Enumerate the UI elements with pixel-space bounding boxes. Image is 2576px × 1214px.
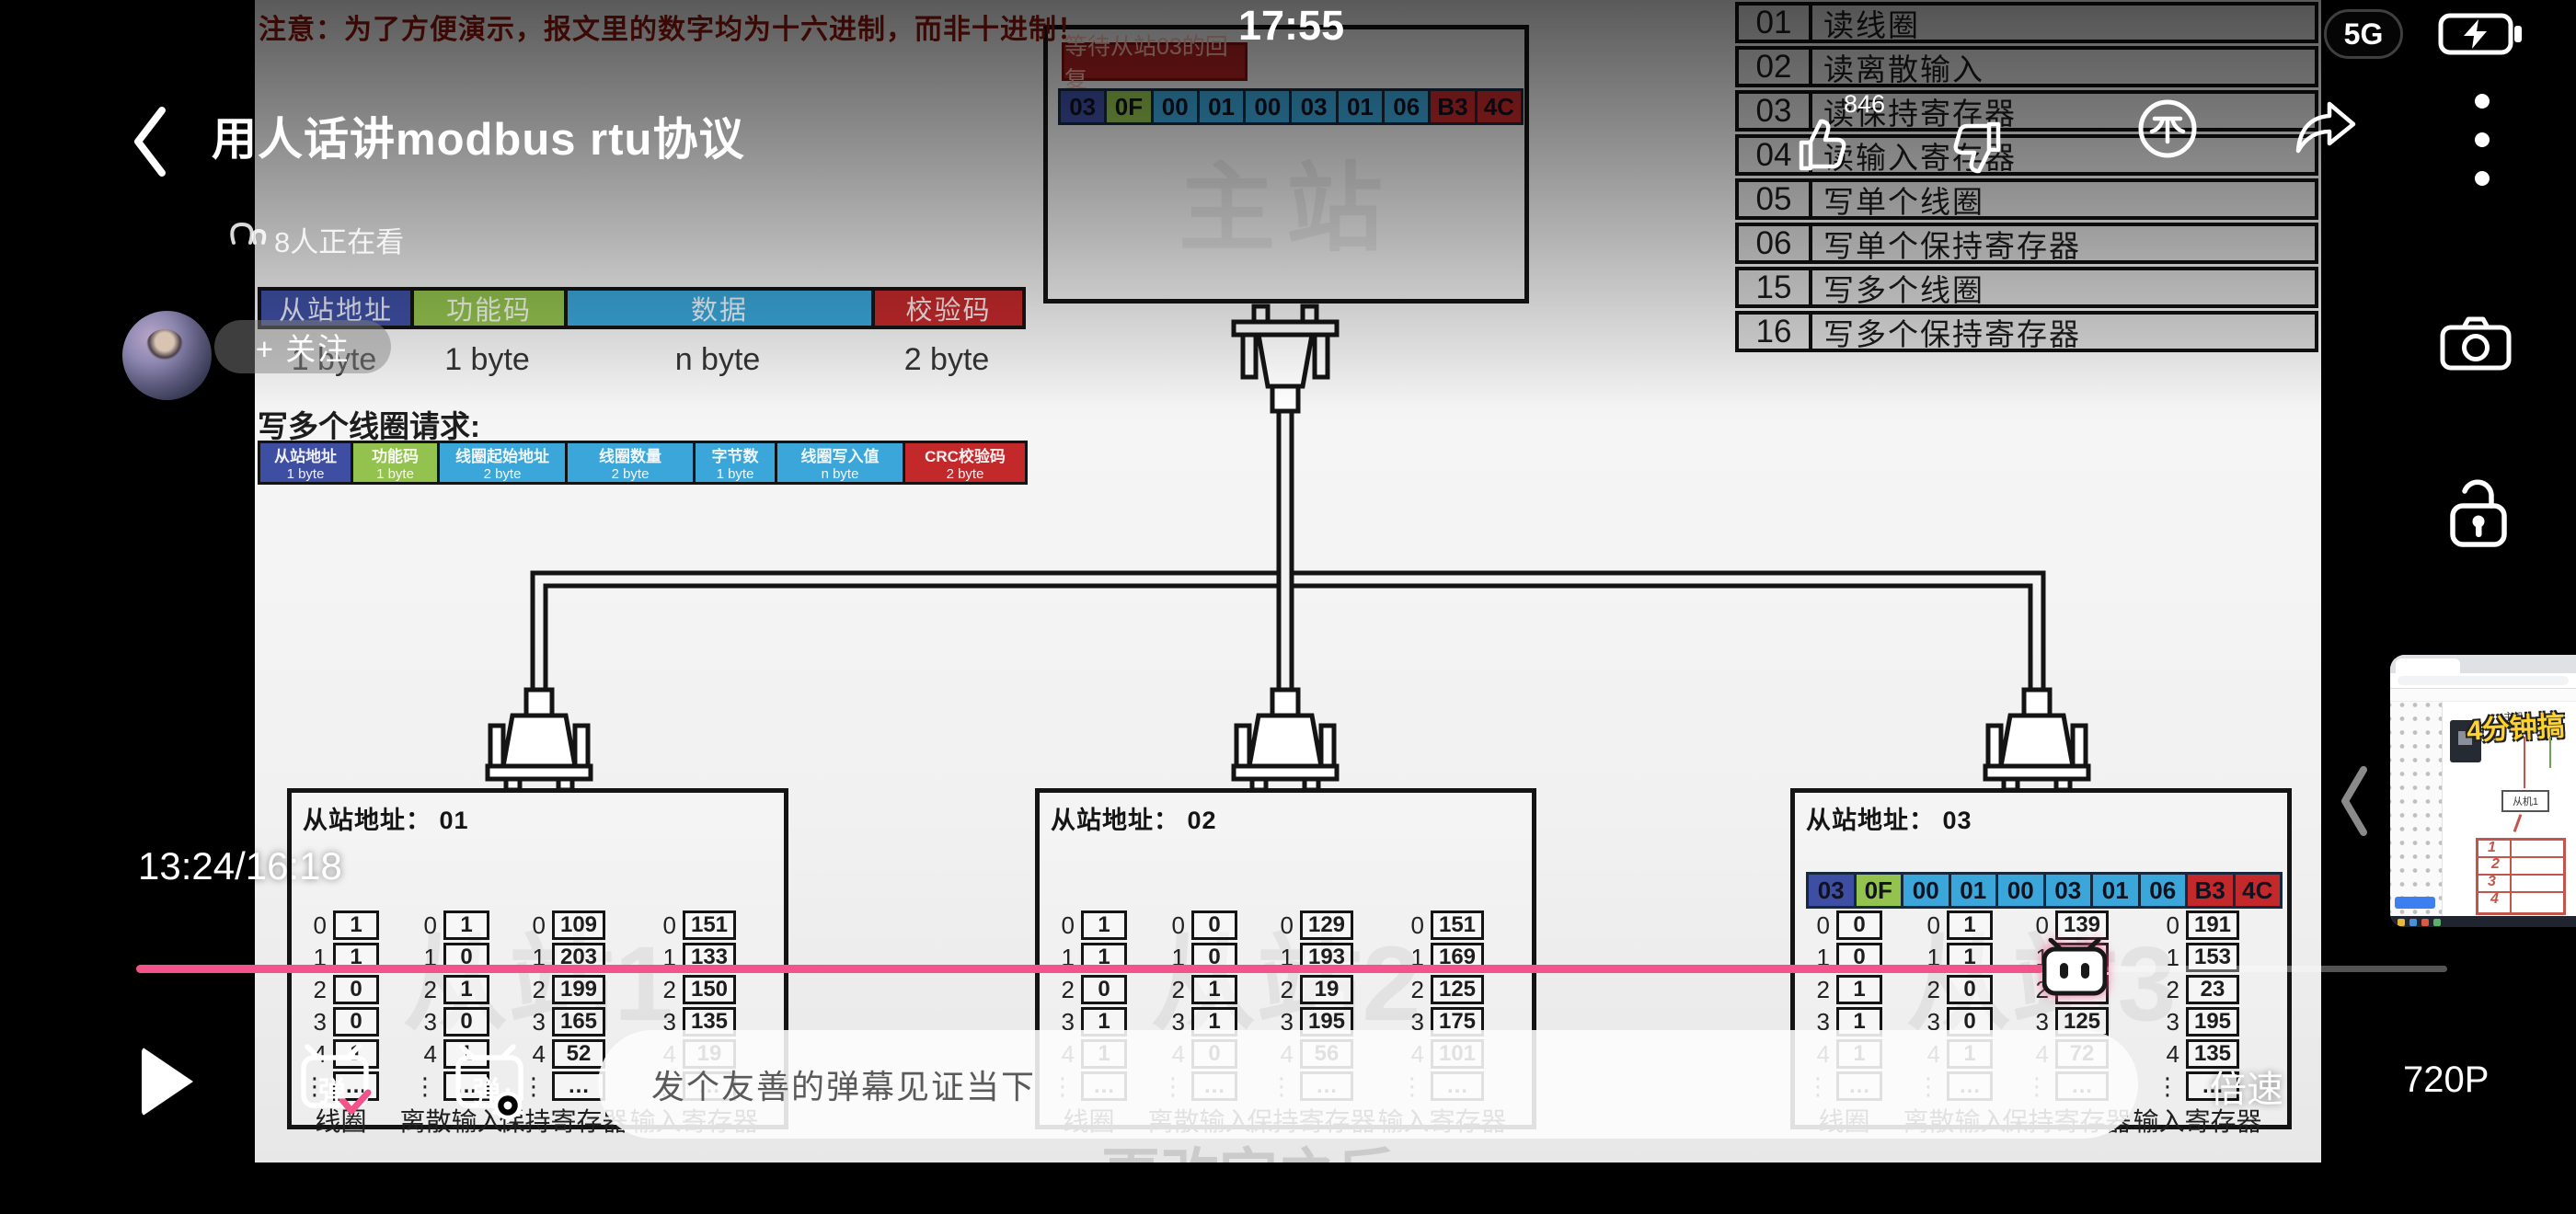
request-field: 线圈起始地址2 byte [437,441,568,485]
function-code: 15 [1735,267,1812,308]
write-coils-request-structure: 从站地址1 byte功能码1 byte线圈起始地址2 byte线圈数量2 byt… [258,441,1025,485]
battery-charging-icon [2438,11,2523,57]
byte-cell: 06 [1382,91,1428,122]
uploader-avatar[interactable] [122,311,212,400]
register-index: ⋮ [413,1072,437,1101]
slave-address-label: 从站地址： 01 [303,800,469,836]
register-index: 2 [413,976,437,1004]
request-field-label: 字节数 [712,443,759,466]
pip-sketch-digit: 4 [2490,891,2499,908]
slave-address-label: 从站地址： 03 [1806,800,1972,836]
register-cell: 1 [1191,975,1237,1004]
register-index: 4 [413,1040,437,1069]
request-field-size: 1 byte [376,466,414,482]
register-index: 0 [1400,911,1424,940]
slave3-db9-connector [1985,690,2088,790]
quality-button[interactable]: 720P [2403,1059,2489,1101]
register-index: 0 [522,911,546,940]
register-index: 0 [1161,911,1185,940]
request-field: CRC校验码2 byte [903,441,1028,485]
request-field-size: 1 byte [287,466,325,482]
coin-icon[interactable] [2136,97,2199,160]
follow-button[interactable]: + 关注 [214,320,391,373]
register-index: 3 [413,1008,437,1036]
function-name: 写多个线圈 [1812,267,2318,308]
danmaku-input[interactable]: 发个友善的弹幕见证当下 [598,1030,2138,1139]
register-index: 2 [1400,976,1424,1004]
frame-field-size: n byte [564,342,871,378]
function-name: 写多个保持寄存器 [1812,311,2318,352]
register-cell: 1 [1947,910,1993,940]
request-field-label: 线圈数量 [599,443,661,466]
progress-bar-played[interactable] [136,965,2044,973]
pip-preview-card[interactable]: 主机 4分钟搞 从机1 1 2 3 4 [2390,655,2576,927]
slave-message-frame: 030F000100030106B34C [1806,872,2283,909]
register-row: 30 [413,1007,489,1036]
pip-sketch-stroke [2513,814,2523,832]
byte-cell: 0F [1854,875,1902,906]
register-index: 2 [1806,976,1830,1004]
pip-slave-node: 从机1 [2501,790,2549,812]
function-name: 写单个线圈 [1812,178,2318,220]
register-cell: 1 [443,975,489,1004]
frame-field-label: 数据 [564,287,875,329]
register-cell: 199 [552,975,605,1004]
register-cell: 19 [1300,975,1353,1004]
register-index: 2 [1270,976,1294,1004]
watermark: 更改完之后 [1101,1129,1396,1214]
slave-address-label: 从站地址： 02 [1051,800,1217,836]
request-field-label: 从站地址 [274,443,337,466]
danmaku-placeholder: 发个友善的弹幕见证当下 [651,1060,1036,1108]
request-field-size: 2 byte [947,466,984,482]
time-display: 13:24/16:18 [138,844,342,888]
byte-cell: 06 [2138,875,2186,906]
request-title: 写多个线圈请求: [258,402,480,446]
register-row: 01 [413,910,489,940]
register-cell: 139 [2055,910,2109,940]
register-row: 0151 [652,910,736,940]
register-row: 00 [1161,910,1237,940]
register-row: 0109 [522,910,605,940]
register-row: 0151 [1400,910,1484,940]
register-row: ⋮… [522,1071,605,1101]
register-index: 0 [1270,911,1294,940]
register-index: 2 [303,976,327,1004]
danmaku-char: 弹 [473,1069,500,1109]
register-cell: 0 [1836,910,1882,940]
register-row: 21 [413,975,489,1004]
danmaku-settings-button[interactable]: 弹 [449,1043,532,1128]
register-index: 0 [1916,911,1940,940]
byte-cell: 00 [1151,91,1197,122]
register-cell: 1 [443,910,489,940]
slave2-db9-connector [1234,690,1337,790]
screenshot-camera-icon[interactable] [2440,313,2512,372]
viewers-icon [226,212,269,250]
register-index: 2 [1161,976,1185,1004]
thumbs-down-icon[interactable] [1947,118,2007,178]
register-cell: 23 [2186,975,2239,1004]
register-column: 0109120321993165452⋮… [522,910,605,1104]
register-cell: 52 [552,1039,605,1069]
request-field: 字节数1 byte [693,441,777,485]
byte-cell: 00 [1901,875,1949,906]
request-field: 功能码1 byte [351,441,440,485]
register-index: 3 [303,1008,327,1036]
register-cell: 109 [552,910,605,940]
frame-field-size: 1 byte [410,342,564,378]
function-name: 写单个保持寄存器 [1812,223,2318,264]
master-status-label: 等待从站03的回复 [1062,42,1248,81]
register-row: 2199 [522,975,605,1004]
more-options-icon[interactable] [2473,92,2491,188]
register-row: 223 [2156,975,2239,1004]
register-index: 3 [522,1008,546,1036]
request-field-label: 线圈起始地址 [455,443,549,466]
register-index: 0 [413,911,437,940]
danmaku-toggle-button[interactable]: 弹 [294,1043,377,1128]
function-code: 06 [1735,223,1812,264]
byte-cell: B3 [1428,91,1474,122]
progress-bar-remaining[interactable] [2107,966,2447,972]
function-name: 读输入寄存器 [1812,134,2318,176]
pip-browser-toolbar [2390,689,2576,702]
register-cell: 0 [1081,975,1127,1004]
register-cell: 1 [1081,910,1127,940]
thumbs-up-icon[interactable] [1792,114,1853,175]
register-cell: 150 [683,975,736,1004]
request-field-label: CRC校验码 [925,443,1006,466]
request-field-size: 1 byte [717,466,754,482]
frame-field: 功能码1 byte [410,287,564,378]
register-cell: 0 [1947,975,1993,1004]
register-row: 01 [303,910,379,940]
register-index: 2 [1051,976,1075,1004]
pip-browser-tabbar [2390,655,2576,673]
register-index: 0 [2025,911,2049,940]
byte-cell: 01 [2090,875,2138,906]
register-cell: 165 [552,1007,605,1036]
register-cell: 125 [1431,975,1484,1004]
byte-cell: 03 [1809,875,1854,906]
function-code: 01 [1735,2,1812,43]
byte-cell: 01 [1949,875,1996,906]
play-button[interactable] [142,1047,193,1117]
register-row: 3165 [522,1007,605,1036]
function-name: 读线圈 [1812,2,2318,43]
register-row: 20 [303,975,379,1004]
pip-sketch-digit: 3 [2488,874,2496,890]
register-cell: 0 [333,975,379,1004]
register-row: 219 [1270,975,1353,1004]
register-row: 0129 [1270,910,1353,940]
progress-thumb-tv-icon[interactable] [2042,938,2107,997]
pip-diagram-canvas: 主机 4分钟搞 从机1 1 2 3 4 [2443,702,2576,916]
register-cell: 129 [1300,910,1353,940]
register-row: 0191 [2156,910,2239,940]
viewers-count: 8人正在看 [274,219,404,260]
register-row: 01 [1051,910,1127,940]
register-row: 20 [1916,975,1993,1004]
pip-shape-palette [2390,702,2443,916]
function-table-row: 05写单个线圈 [1735,178,2318,220]
video-title: 用人话讲modbus rtu协议 [212,103,744,168]
register-index: 0 [303,911,327,940]
function-table-row: 06写单个保持寄存器 [1735,223,2318,264]
share-icon[interactable] [2293,99,2359,156]
frame-field-label: 校验码 [871,287,1026,329]
function-name: 读离散输入 [1812,46,2318,87]
frame-field: 校验码2 byte [871,287,1022,378]
byte-cell: 01 [1336,91,1382,122]
register-row: 452 [522,1039,605,1069]
byte-cell: 00 [1995,875,2043,906]
pip-green-wire [2549,737,2551,768]
byte-cell: 4C [2233,875,2281,906]
byte-cell: 01 [1197,91,1243,122]
register-cell: 1 [333,910,379,940]
byte-cell: B3 [2185,875,2233,906]
register-row: 01 [1916,910,1993,940]
function-code: 16 [1735,311,1812,352]
register-index: 2 [1916,976,1940,1004]
register-row: 00 [1806,910,1882,940]
register-index: 2 [2156,976,2179,1004]
pip-sketch-digit: 2 [2491,856,2500,873]
pip-blue-button [2395,897,2435,909]
register-row: 2125 [1400,975,1484,1004]
byte-cell: 0F [1104,91,1150,122]
function-table-row: 16写多个保持寄存器 [1735,311,2318,352]
register-index: ⋮ [2156,1072,2179,1101]
playback-speed-button[interactable]: 倍速 [2210,1059,2283,1113]
function-table-row: 15写多个线圈 [1735,267,2318,308]
register-cell: 1 [1836,975,1882,1004]
register-index: 0 [2156,911,2179,940]
register-index: 4 [2156,1040,2179,1069]
register-cell: 151 [1431,910,1484,940]
register-index: 0 [1806,911,1830,940]
request-field-size: 2 byte [484,466,522,482]
byte-cell: 03 [1289,91,1335,122]
register-cell: 151 [683,910,736,940]
network-5g-badge: 5G [2324,9,2403,59]
pip-browser-urlbar [2390,673,2576,689]
request-field-label: 功能码 [372,443,419,466]
request-field: 从站地址1 byte [258,441,353,485]
frame-field-label: 功能码 [410,287,568,329]
register-cell: 0 [1191,910,1237,940]
master-station-box: 主站 等待从站03的回复 030F000100030106B34C [1043,25,1529,303]
pip-sketch-table: 1 2 3 4 [2476,838,2566,915]
register-index: 2 [652,976,676,1004]
register-row: 3195 [2156,1007,2239,1036]
function-table-row: 02读离散输入 [1735,46,2318,87]
function-name: 读保持寄存器 [1812,90,2318,132]
frame-field: 数据n byte [564,287,871,378]
byte-cell: 03 [2043,875,2091,906]
register-index: 0 [1051,911,1075,940]
byte-cell: 00 [1243,91,1289,122]
register-index: 2 [522,976,546,1004]
pip-collapse-chevron[interactable] [2339,763,2368,839]
request-field-size: n byte [822,466,859,482]
register-row: 2150 [652,975,736,1004]
request-field-label: 线圈写入值 [801,443,880,466]
register-cell: 195 [2186,1007,2239,1036]
frame-field-size: 2 byte [871,342,1022,378]
function-code: 05 [1735,178,1812,220]
register-row: 21 [1161,975,1237,1004]
pip-sketch-digit: 1 [2488,840,2496,856]
register-cell: 0 [443,1007,489,1036]
register-row: 21 [1806,975,1882,1004]
byte-cell: 03 [1061,91,1104,122]
unlock-rotation-icon[interactable] [2447,473,2512,548]
watermark: 主站 [1048,131,1524,270]
recording-clock: 17:55 [1238,2,1344,50]
function-code-table: 01读线圈02读离散输入03读保持寄存器04读输入寄存器05写单个线圈06写单个… [1735,2,2318,355]
register-index: 0 [652,911,676,940]
register-row: 30 [303,1007,379,1036]
video-frame[interactable]: 注意：为了方便演示，报文里的数字均为十六进制，而非十进制！ 01读线圈02读离散… [255,0,2321,1162]
pip-taskbar [2390,916,2576,927]
master-message-frame: 030F000100030106B34C [1058,88,1524,125]
register-row: 20 [1051,975,1127,1004]
register-index: 3 [2156,1008,2179,1036]
register-cell: 191 [2186,910,2239,940]
request-field: 线圈写入值n byte [775,441,905,485]
master-db9-connector [1234,306,1337,411]
back-icon[interactable] [129,103,171,180]
request-field: 线圈数量2 byte [565,441,696,485]
byte-cell: 4C [1475,91,1521,122]
slave1-db9-connector [488,690,591,790]
function-code: 02 [1735,46,1812,87]
register-cell: 0 [333,1007,379,1036]
request-field-size: 2 byte [612,466,650,482]
danmaku-char: 弹 [318,1069,346,1109]
register-row: 0139 [2025,910,2109,940]
pip-red-wire [2524,737,2525,788]
function-table-row: 01读线圈 [1735,2,2318,43]
hex-warning-text: 注意：为了方便演示，报文里的数字均为十六进制，而非十进制！ [259,6,1086,47]
